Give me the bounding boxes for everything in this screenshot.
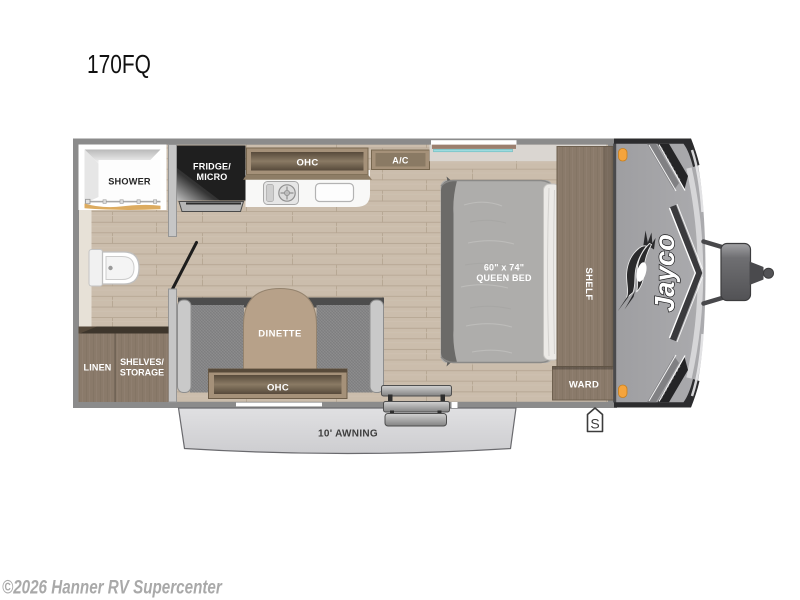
svg-text:OHC: OHC	[296, 158, 318, 169]
svg-text:170FQ: 170FQ	[87, 50, 151, 78]
svg-text:MICRO: MICRO	[197, 172, 228, 182]
svg-text:FRIDGE/: FRIDGE/	[193, 162, 231, 172]
svg-text:Jayco: Jayco	[649, 234, 680, 312]
svg-text:S: S	[590, 416, 599, 432]
svg-text:A/C: A/C	[392, 156, 409, 166]
svg-text:SHELF: SHELF	[583, 267, 594, 300]
svg-text:SHELVES/: SHELVES/	[120, 357, 164, 367]
svg-text:STORAGE: STORAGE	[120, 368, 164, 378]
svg-text:WARD: WARD	[569, 380, 599, 391]
svg-text:LINEN: LINEN	[84, 363, 112, 373]
svg-text:10' AWNING: 10' AWNING	[318, 429, 378, 440]
svg-text:60" x 74": 60" x 74"	[484, 263, 524, 273]
svg-text:DINETTE: DINETTE	[258, 329, 301, 340]
svg-text:SHOWER: SHOWER	[108, 177, 151, 187]
svg-text:©2026 Hanner RV Supercenter: ©2026 Hanner RV Supercenter	[2, 576, 223, 598]
svg-text:OHC: OHC	[267, 383, 289, 394]
svg-text:QUEEN BED: QUEEN BED	[476, 273, 532, 283]
